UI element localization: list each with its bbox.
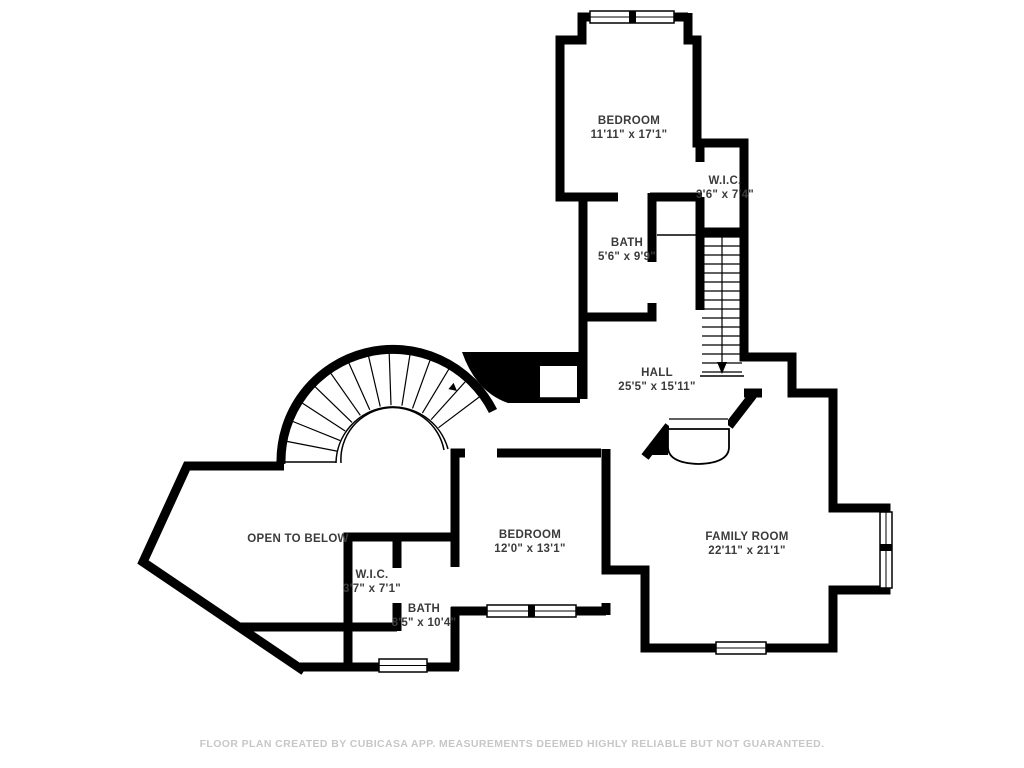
- room-name: BEDROOM: [494, 528, 565, 542]
- room-name: BEDROOM: [591, 114, 668, 128]
- disclaimer-text: FLOOR PLAN CREATED BY CUBICASA APP. MEAS…: [0, 738, 1024, 750]
- curved-stair-direction-arrow: [448, 383, 457, 391]
- curved-staircase: [281, 349, 493, 464]
- room-label-wic-upper: W.I.C. 3'6" x 7'4": [696, 174, 754, 202]
- room-name: FAMILY ROOM: [705, 530, 788, 544]
- room-dims: 22'11" x 21'1": [705, 544, 788, 558]
- room-label-open-to-below: OPEN TO BELOW: [247, 532, 348, 546]
- room-dims: 3'7" x 7'1": [343, 582, 401, 596]
- room-label-family-room: FAMILY ROOM 22'11" x 21'1": [705, 530, 788, 558]
- room-label-bath-lower: BATH 8'5" x 10'4": [392, 602, 457, 630]
- room-label-hall: HALL 25'5" x 15'11": [618, 366, 696, 394]
- room-name: OPEN TO BELOW: [247, 532, 348, 546]
- room-dims: 5'6" x 9'9": [598, 250, 656, 264]
- room-dims: 12'0" x 13'1": [494, 542, 565, 556]
- room-name: W.I.C.: [343, 568, 401, 582]
- room-dims: 25'5" x 15'11": [618, 380, 696, 394]
- hall-closet: [540, 366, 577, 398]
- room-dims: 8'5" x 10'4": [392, 616, 457, 630]
- room-name: BATH: [392, 602, 457, 616]
- family-room-bottom-window: [716, 642, 766, 654]
- bedroom-upper-window: [590, 11, 674, 23]
- room-label-bath-upper: BATH 5'6" x 9'9": [598, 236, 656, 264]
- room-dims: 3'6" x 7'4": [696, 188, 754, 202]
- floor-plan-drawing: [0, 0, 1024, 768]
- room-label-wic-lower: W.I.C. 3'7" x 7'1": [343, 568, 401, 596]
- bath-lower-window: [379, 659, 427, 672]
- room-dims: 11'11" x 17'1": [591, 128, 668, 142]
- floor-plan-page: BEDROOM 11'11" x 17'1" W.I.C. 3'6" x 7'4…: [0, 0, 1024, 768]
- room-name: BATH: [598, 236, 656, 250]
- exterior-walls: [143, 13, 886, 671]
- room-label-bedroom-upper: BEDROOM 11'11" x 17'1": [591, 114, 668, 142]
- fireplace: [645, 395, 753, 464]
- room-label-bedroom-lower: BEDROOM 12'0" x 13'1": [494, 528, 565, 556]
- family-room-bay-window: [880, 512, 892, 588]
- bedroom-lower-window: [487, 605, 576, 617]
- room-name: W.I.C.: [696, 174, 754, 188]
- room-name: HALL: [618, 366, 696, 380]
